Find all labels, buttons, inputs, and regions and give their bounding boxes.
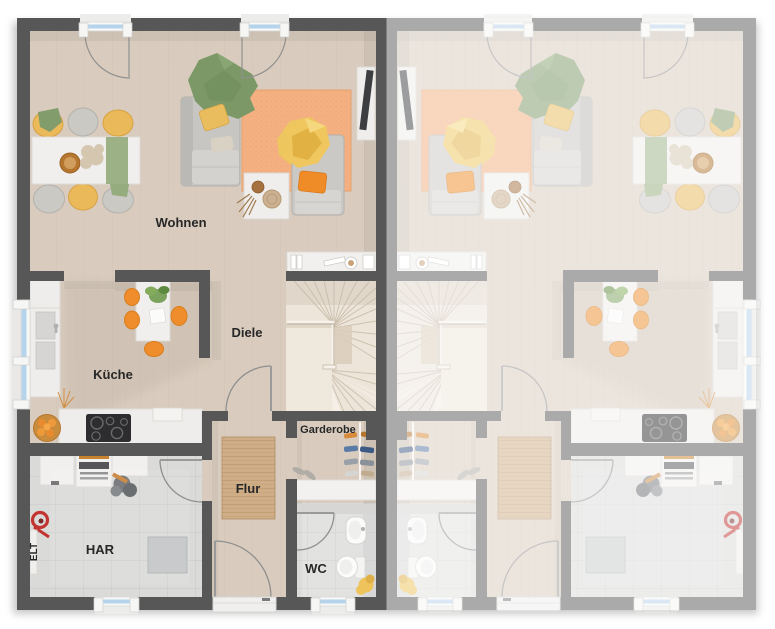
svg-text:Diele: Diele (231, 325, 262, 340)
svg-text:Garderobe: Garderobe (300, 424, 356, 436)
svg-text:HAR: HAR (86, 542, 115, 557)
svg-text:Küche: Küche (93, 367, 133, 382)
svg-text:ELT: ELT (29, 543, 40, 561)
svg-text:WC: WC (305, 561, 327, 576)
svg-text:Flur: Flur (236, 481, 261, 496)
svg-text:Wohnen: Wohnen (155, 215, 206, 230)
